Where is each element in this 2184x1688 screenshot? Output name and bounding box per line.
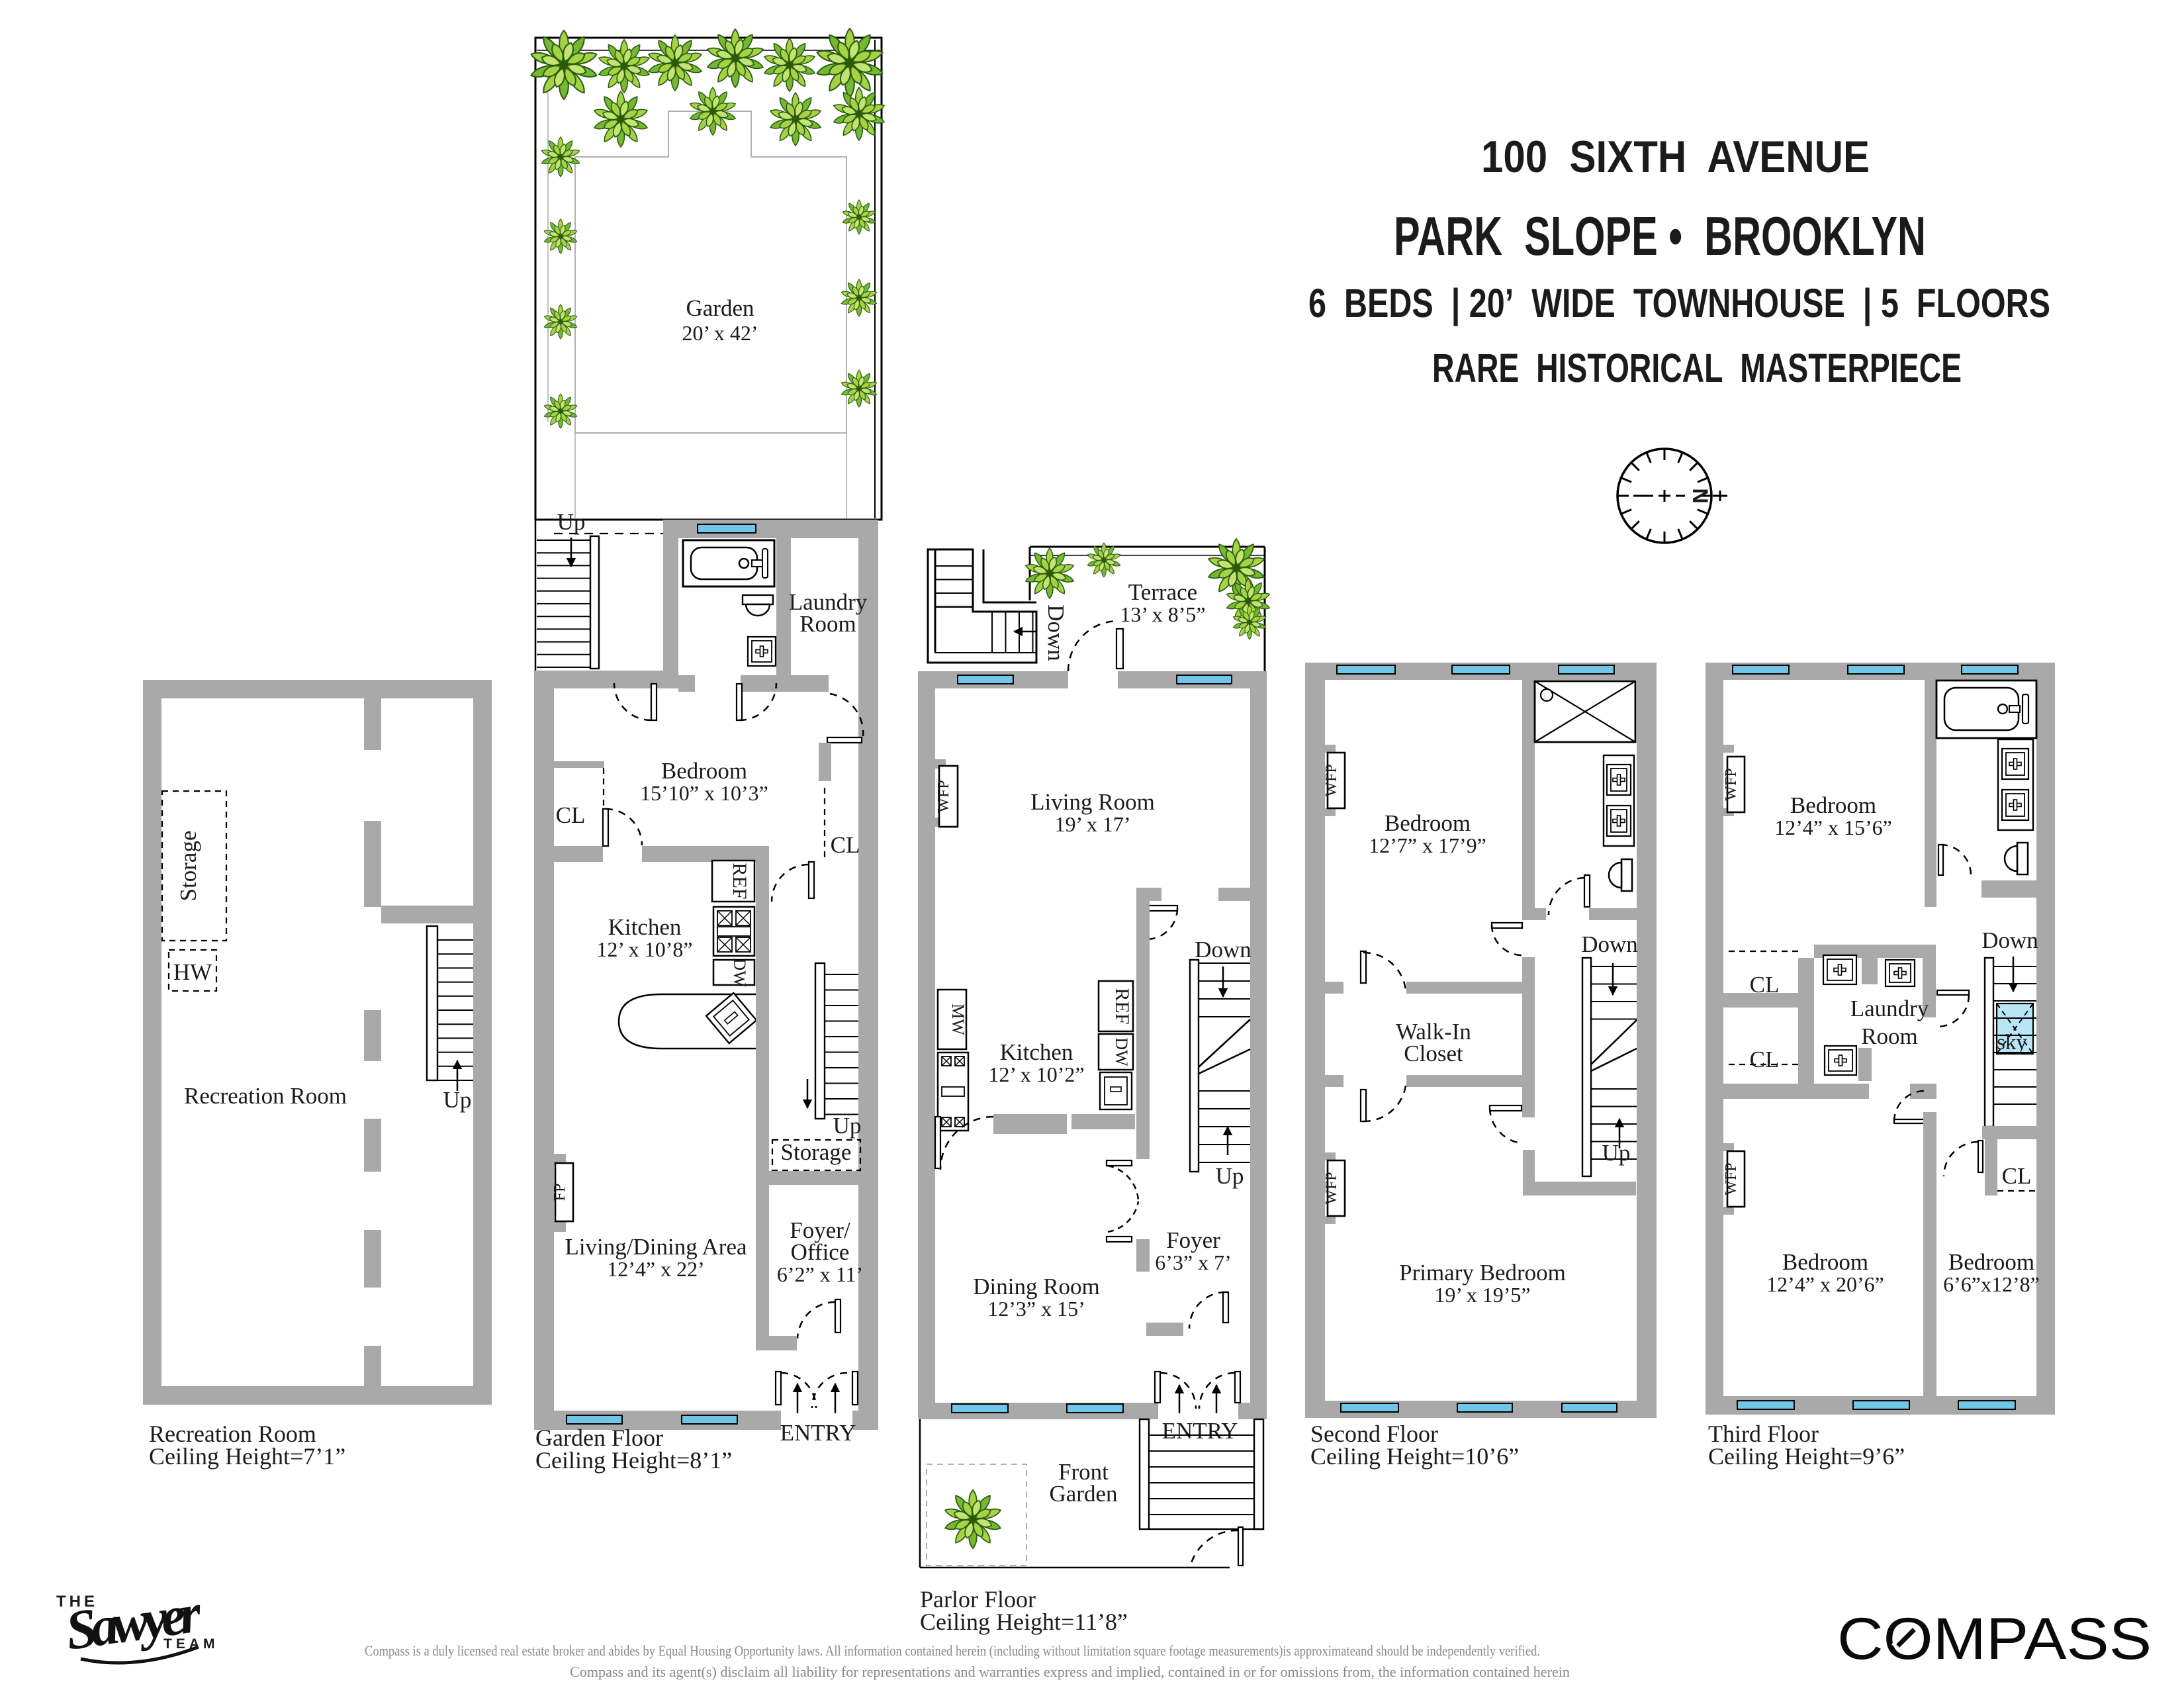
- svg-text:WFP: WFP: [935, 780, 952, 812]
- svg-text:REF: REF: [729, 863, 751, 899]
- svg-text:Closet: Closet: [1404, 1041, 1463, 1066]
- svg-text:Garden: Garden: [686, 295, 754, 321]
- svg-text:CL: CL: [1750, 1047, 1780, 1072]
- svg-text:Terrace: Terrace: [1128, 579, 1197, 605]
- svg-text:DW: DW: [1112, 1037, 1131, 1066]
- svg-text:13’ x 8’5”: 13’ x 8’5”: [1120, 602, 1205, 626]
- svg-text:RARE HISTORICAL MASTERPIECE: RARE HISTORICAL MASTERPIECE: [1432, 346, 1962, 391]
- svg-text:Up: Up: [557, 509, 586, 535]
- svg-text:Bedroom: Bedroom: [1948, 1249, 2034, 1275]
- svg-text:Living Room: Living Room: [1030, 789, 1155, 815]
- svg-text:HW: HW: [173, 959, 212, 985]
- svg-text:CL: CL: [1750, 972, 1780, 998]
- svg-text:ENTRY: ENTRY: [780, 1420, 856, 1446]
- svg-text:Ceiling Height=7’1”: Ceiling Height=7’1”: [149, 1443, 345, 1470]
- svg-text:REF: REF: [1111, 988, 1133, 1024]
- svg-text:sky: sky: [1997, 1031, 2027, 1055]
- svg-text:Room: Room: [799, 611, 856, 637]
- svg-text:N: N: [1688, 488, 1712, 503]
- svg-text:MW: MW: [948, 1004, 968, 1035]
- svg-text:WFP: WFP: [1723, 768, 1740, 800]
- svg-text:Foyer: Foyer: [1166, 1227, 1220, 1253]
- svg-text:12’4” x 15’6”: 12’4” x 15’6”: [1774, 816, 1892, 839]
- svg-text:Office: Office: [791, 1239, 850, 1265]
- svg-text:6’3” x 7’: 6’3” x 7’: [1155, 1250, 1232, 1274]
- svg-text:Up: Up: [443, 1087, 472, 1113]
- svg-text:12’ x 10’2”: 12’ x 10’2”: [988, 1062, 1084, 1086]
- svg-text:Storage: Storage: [175, 831, 201, 902]
- svg-text:CL: CL: [831, 832, 860, 858]
- svg-text:Up: Up: [833, 1113, 862, 1139]
- svg-text:Compass and its agent(s) discl: Compass and its agent(s) disclaim all li…: [570, 1664, 1570, 1680]
- svg-text:12’3” x 15’: 12’3” x 15’: [987, 1297, 1085, 1321]
- svg-text:Up: Up: [1602, 1140, 1631, 1166]
- svg-text:Primary Bedroom: Primary Bedroom: [1399, 1260, 1566, 1286]
- svg-text:Down: Down: [1195, 937, 1251, 962]
- svg-text:20’ x 42’: 20’ x 42’: [682, 321, 758, 345]
- svg-text:12’7” x 17’9”: 12’7” x 17’9”: [1369, 833, 1486, 857]
- svg-text:ENTRY: ENTRY: [1162, 1418, 1238, 1444]
- svg-text:Down: Down: [1581, 931, 1638, 957]
- svg-text:Ceiling Height=9’6”: Ceiling Height=9’6”: [1708, 1443, 1905, 1470]
- svg-text:DW: DW: [730, 958, 749, 987]
- svg-text:CL: CL: [2002, 1163, 2032, 1189]
- svg-text:6’6”x12’8”: 6’6”x12’8”: [1943, 1272, 2040, 1296]
- svg-text:Kitchen: Kitchen: [1000, 1039, 1073, 1065]
- svg-text:Compass is a duly licensed rea: Compass is a duly licensed real estate b…: [365, 1642, 1540, 1659]
- svg-text:Dining Room: Dining Room: [973, 1274, 1100, 1299]
- svg-text:100 SIXTH AVENUE: 100 SIXTH AVENUE: [1481, 132, 1870, 182]
- svg-text:12’ x 10’8”: 12’ x 10’8”: [596, 937, 692, 961]
- svg-text:PARK SLOPE • BROOKLYN: PARK SLOPE • BROOKLYN: [1394, 205, 1926, 267]
- svg-text:Down: Down: [1981, 927, 2038, 953]
- svg-text:Bedroom: Bedroom: [661, 758, 747, 784]
- svg-text:Garden: Garden: [1049, 1481, 1117, 1507]
- svg-text:Storage: Storage: [781, 1139, 852, 1165]
- svg-text:Kitchen: Kitchen: [608, 914, 682, 940]
- svg-text:TEAM: TEAM: [163, 1636, 219, 1652]
- svg-text:Down: Down: [1043, 604, 1069, 661]
- svg-text:WFP: WFP: [1323, 1172, 1340, 1204]
- svg-text:6’2” x 11’: 6’2” x 11’: [777, 1262, 863, 1286]
- svg-text:Bedroom: Bedroom: [1782, 1249, 1868, 1275]
- svg-text:Bedroom: Bedroom: [1790, 792, 1876, 818]
- svg-text:Recreation Room: Recreation Room: [184, 1083, 347, 1109]
- svg-text:19’ x 17’: 19’ x 17’: [1055, 812, 1131, 836]
- svg-text:Living/Dining Area: Living/Dining Area: [565, 1234, 747, 1260]
- svg-text:WFP: WFP: [1323, 764, 1340, 796]
- svg-text:12’4” x 20’6”: 12’4” x 20’6”: [1766, 1272, 1884, 1296]
- svg-text:19’ x 19’5”: 19’ x 19’5”: [1434, 1283, 1530, 1307]
- svg-text:15’10” x 10’3”: 15’10” x 10’3”: [640, 781, 768, 805]
- svg-text:Up: Up: [1216, 1163, 1244, 1189]
- svg-text:Ceiling Height=11’8”: Ceiling Height=11’8”: [920, 1609, 1128, 1635]
- svg-text:Laundry: Laundry: [1850, 996, 1929, 1021]
- svg-text:Ceiling Height=10’6”: Ceiling Height=10’6”: [1310, 1443, 1519, 1470]
- svg-text:COMPASS: COMPASS: [1837, 1605, 2152, 1671]
- svg-text:12’4” x 22’: 12’4” x 22’: [607, 1257, 705, 1281]
- svg-text:Room: Room: [1861, 1023, 1918, 1049]
- svg-text:6 BEDS | 20’ WIDE TOWNHOUS: 6 BEDS | 20’ WIDE TOWNHOUSE | 5 FLOORS: [1308, 281, 2050, 327]
- svg-text:WFP: WFP: [1723, 1162, 1740, 1195]
- svg-text:Bedroom: Bedroom: [1385, 810, 1471, 836]
- svg-text:CL: CL: [556, 802, 586, 828]
- svg-text:Ceiling Height=8’1”: Ceiling Height=8’1”: [535, 1447, 732, 1474]
- svg-text:FP: FP: [551, 1184, 569, 1201]
